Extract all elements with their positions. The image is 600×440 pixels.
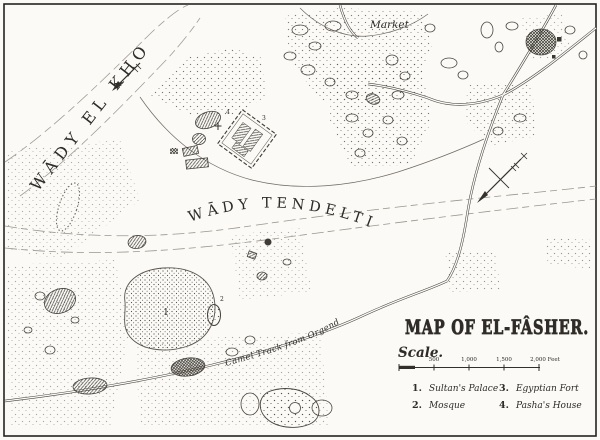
legend-item-1: 1. Sultan's Palace (412, 383, 498, 394)
legend-item-2: 2. Mosque (412, 400, 465, 411)
market-label: Market (369, 19, 410, 31)
scale-tick-500: 500 (429, 357, 440, 363)
legend-item-3: 3. Egyptian Fort (499, 383, 579, 394)
fort-number: 3 (262, 115, 266, 122)
scanned-map-page: 1 2 3 4 (0, 0, 600, 440)
scale-tick-1500: 1,500 (496, 357, 512, 363)
pashas-house-area-blob (526, 29, 556, 55)
sultans-palace: 1 (125, 268, 215, 350)
palace-number: 1 (163, 308, 169, 318)
scale-tick-1000: 1,000 (461, 357, 477, 363)
pashas-house-number: 4 (226, 109, 230, 116)
map-title: MAP OF EL-FÂSHER. (405, 315, 589, 339)
scale-tick-2000: 2,000 Feet (530, 357, 561, 363)
mosque-number: 2 (220, 296, 224, 303)
el-fasher-map: 1 2 3 4 (0, 0, 600, 440)
legend-item-4: 4. Pasha's House (499, 400, 582, 411)
